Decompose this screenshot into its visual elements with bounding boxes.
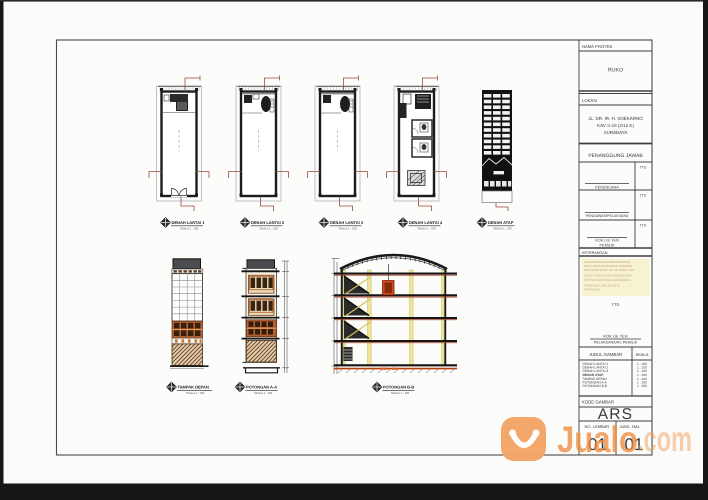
svg-text:PENGAWAS/PELAKSANA: PENGAWAS/PELAKSANA <box>586 214 629 218</box>
svg-text:POTONGAN A-A: POTONGAN A-A <box>246 385 277 390</box>
svg-text:JL. DR. IR. H. SOEKARNO: JL. DR. IR. H. SOEKARNO <box>588 116 643 121</box>
svg-text:Jualo: Jualo <box>557 419 638 460</box>
svg-text:KODE GAMBAR: KODE GAMBAR <box>582 400 614 405</box>
svg-text:DENAH LANTAI 3: DENAH LANTAI 3 <box>330 220 364 225</box>
svg-text:DENAH LANTAI 4: DENAH LANTAI 4 <box>409 220 443 225</box>
svg-text:SERTA PERATURAN BANGUNAN: SERTA PERATURAN BANGUNAN <box>584 278 631 282</box>
svg-text:KOK LIE YEN: KOK LIE YEN <box>603 334 627 339</box>
svg-text:KETERANGAN: KETERANGAN <box>582 251 608 255</box>
svg-text:SURABAYA: SURABAYA <box>584 288 600 292</box>
svg-text:.com: .com <box>637 420 692 459</box>
svg-text:DENAH ATAP: DENAH ATAP <box>488 220 514 225</box>
svg-text:SURABAYA: SURABAYA <box>604 130 628 135</box>
svg-text:PERENCANA: PERENCANA <box>595 186 619 190</box>
svg-text:JUDUL GAMBAR: JUDUL GAMBAR <box>589 352 623 357</box>
svg-text:SKALA 1 : 100: SKALA 1 : 100 <box>339 226 358 230</box>
svg-text:TAMPAK DEPAN: TAMPAK DEPAN <box>178 385 209 390</box>
svg-text:OLEH PEMILIK DAN PERENCANA: OLEH PEMILIK DAN PERENCANA <box>584 274 632 278</box>
svg-text:POTONGAN B-B: POTONGAN B-B <box>383 385 414 390</box>
svg-text:SKALA 1 : 100: SKALA 1 : 100 <box>391 391 410 395</box>
svg-text:TTD: TTD <box>612 302 620 307</box>
svg-text:SKALA 1 : 100: SKALA 1 : 100 <box>260 226 279 230</box>
svg-text:SKALA 1 : 100: SKALA 1 : 100 <box>418 226 437 230</box>
svg-text:SKALA: SKALA <box>636 352 649 357</box>
svg-text:SKALA 1 : 100: SKALA 1 : 100 <box>186 391 205 395</box>
svg-text:LOKASI: LOKASI <box>582 98 597 103</box>
svg-text:1 : 100: 1 : 100 <box>637 384 647 388</box>
svg-text:POTONGAN B-B: POTONGAN B-B <box>583 384 607 388</box>
svg-text:DENAH LANTAI 2: DENAH LANTAI 2 <box>251 220 285 225</box>
svg-text:KAV S-18 (2/12 K): KAV S-18 (2/12 K) <box>597 123 634 128</box>
svg-text:NAMA PROYEK: NAMA PROYEK <box>582 44 613 49</box>
svg-text:PELAKSANAAN: PEMILIK: PELAKSANAAN: PEMILIK <box>594 341 638 345</box>
svg-text:KOK LIE YEN: KOK LIE YEN <box>595 239 619 243</box>
svg-text:SKALA 1 : 100: SKALA 1 : 100 <box>494 226 513 230</box>
svg-text:TTD: TTD <box>640 194 647 198</box>
svg-text:SKALA 1 : 100: SKALA 1 : 100 <box>180 226 199 230</box>
svg-text:TTD: TTD <box>640 166 647 170</box>
svg-text:PENANGGUNG JAWAB: PENANGGUNG JAWAB <box>588 153 643 159</box>
svg-text:TTD: TTD <box>640 224 647 228</box>
svg-text:DENAH LANTAI 1: DENAH LANTAI 1 <box>172 220 206 225</box>
svg-text:SKALA 1 : 100: SKALA 1 : 100 <box>254 391 273 395</box>
svg-text:PEMILIK: PEMILIK <box>600 244 615 248</box>
svg-text:RENCANA YANG TELAH DISETUJUI: RENCANA YANG TELAH DISETUJUI <box>584 268 635 272</box>
svg-text:RUKO: RUKO <box>608 68 623 74</box>
